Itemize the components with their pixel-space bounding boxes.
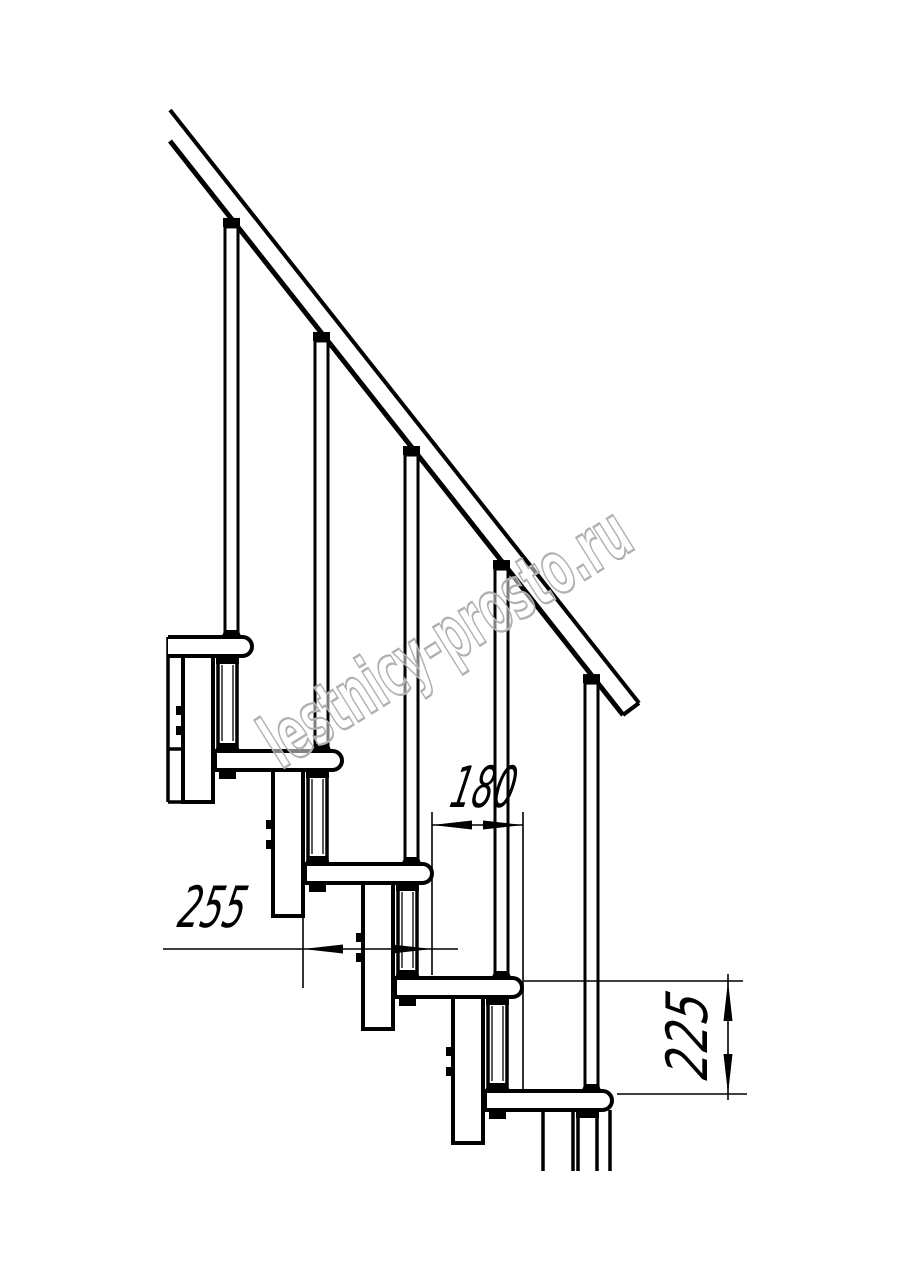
stair-tread [305, 864, 432, 883]
column-bolt [446, 1047, 453, 1056]
support-column [183, 656, 213, 802]
column-bolt [176, 706, 183, 715]
baluster [585, 683, 598, 1091]
stair-tread [168, 637, 252, 656]
post-nut [309, 883, 326, 892]
support-post [398, 883, 417, 978]
baluster-foot [222, 630, 242, 637]
column-bolt [356, 933, 363, 942]
post-foot [485, 1083, 510, 1091]
staircase-drawing-page: 180255225lestnicy-prosto.ru [0, 0, 914, 1280]
baluster-foot [402, 857, 422, 864]
post-nut [399, 997, 416, 1006]
baluster-foot [582, 1084, 602, 1091]
post-top-connector [216, 656, 239, 664]
post-nut [219, 770, 236, 779]
support-column [273, 770, 303, 916]
post-foot [305, 856, 330, 864]
baluster-rail-connector [223, 218, 240, 227]
post-nut [489, 1110, 506, 1119]
baluster-foot [492, 971, 512, 978]
baluster-rail-connector [313, 332, 330, 341]
stair-tread [485, 1091, 612, 1110]
baluster-rail-connector [403, 446, 420, 455]
post-foot [215, 743, 240, 751]
column-bolt [176, 726, 183, 735]
column-bolt [356, 953, 363, 962]
post-top-connector [486, 997, 509, 1005]
support-column [453, 997, 483, 1143]
column-bolt [266, 840, 273, 849]
support-column [363, 883, 393, 1029]
post-top-connector [396, 883, 419, 891]
column-bolt [446, 1067, 453, 1076]
stair-tread [395, 978, 522, 997]
support-post [218, 656, 237, 751]
column-bolt [266, 820, 273, 829]
staircase-technical-drawing: 180255225lestnicy-prosto.ru [0, 0, 914, 1280]
dimension-label-step-rise: 225 [654, 986, 721, 1084]
post-top-connector [576, 1110, 599, 1118]
support-post [488, 997, 507, 1091]
post-foot [395, 970, 420, 978]
baluster [225, 227, 238, 637]
baluster-rail-connector [583, 674, 600, 683]
support-post [308, 770, 327, 864]
